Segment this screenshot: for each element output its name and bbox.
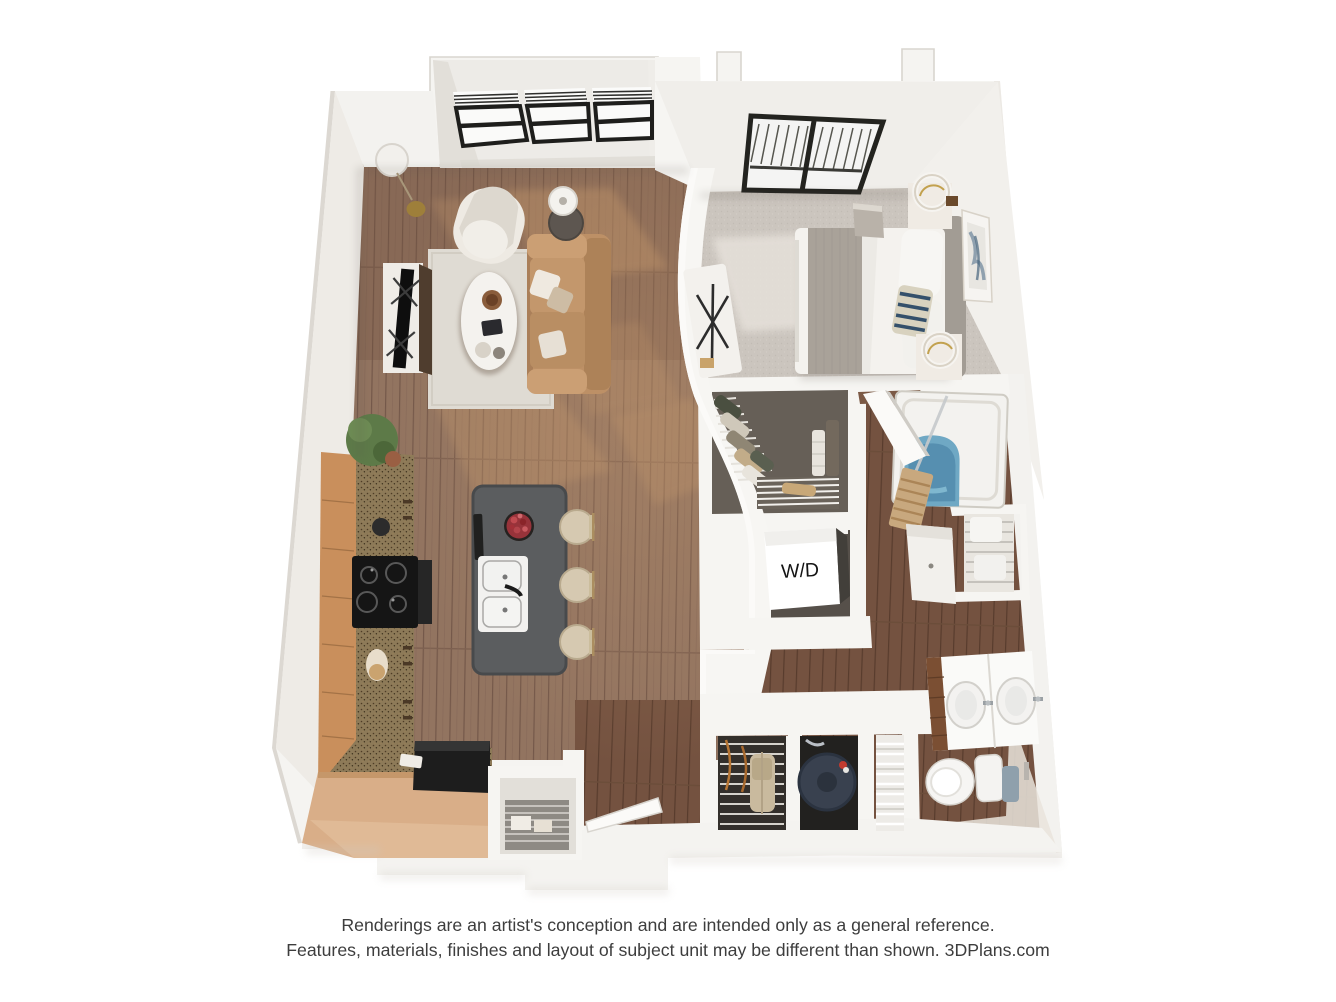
- svg-text:W/D: W/D: [781, 559, 820, 583]
